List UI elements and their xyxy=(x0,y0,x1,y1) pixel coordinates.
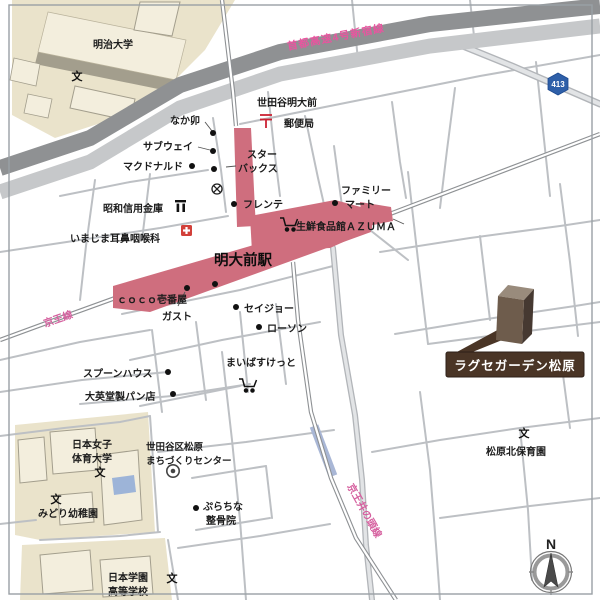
marker-building-front xyxy=(496,296,524,344)
label-lawson: ローソン xyxy=(267,324,307,335)
label-maibasket: まいばすけっと xyxy=(226,356,296,369)
campus-pool xyxy=(112,475,136,495)
label-frente: フレンテ xyxy=(243,199,283,211)
label-midori-kindergarten: みどり幼稚園 xyxy=(38,507,98,520)
school-mark-nwcpe: 文 xyxy=(95,465,107,479)
map-canvas: 413 文 文 文 文 文 明治大学 首都高速4号新宿線 世田谷明大前 郵便局 … xyxy=(0,0,600,600)
label-nakau: なか卯 xyxy=(170,114,200,127)
label-azuma: 生鮮食品館ＡＺＵＭＡ xyxy=(296,220,396,233)
label-spoon-house: スプーンハウス xyxy=(83,367,153,380)
label-meiji-university: 明治大学 xyxy=(93,38,133,51)
label-coco-ichibanya: ｃｏｃｏ壱番屋 xyxy=(117,293,187,306)
label-machizukuri-1: 世田谷区松原 xyxy=(146,441,204,453)
label-post-office-1: 世田谷明大前 xyxy=(257,96,317,109)
label-seijo: セイジョー xyxy=(244,303,294,315)
label-starbucks-1: スター xyxy=(247,149,277,161)
label-purachina-1: ぷらちな xyxy=(202,501,243,513)
marker-label-text: ラグセガーデン松原 xyxy=(454,358,576,373)
compass-north-label: N xyxy=(546,536,556,552)
label-imajima-clinic: いまじま耳鼻咽喉科 xyxy=(70,232,160,245)
school-mark-meiji: 文 xyxy=(72,69,84,83)
label-familymart-2: マート xyxy=(345,199,375,211)
label-purachina-2: 整骨院 xyxy=(205,514,236,527)
label-station: 明大前駅 xyxy=(214,251,272,269)
school-mark-matsubara: 文 xyxy=(519,426,531,440)
label-nihongakuen-2: 高等学校 xyxy=(108,585,149,598)
school-mark-midori: 文 xyxy=(51,492,63,506)
label-subway: サブウェイ xyxy=(143,140,193,153)
label-showa-shinkin: 昭和信用金庫 xyxy=(103,202,163,215)
route-number: 413 xyxy=(551,80,565,89)
location-map: 413 文 文 文 文 文 明治大学 首都高速4号新宿線 世田谷明大前 郵便局 … xyxy=(0,0,600,600)
school-mark-nihongakuen: 文 xyxy=(167,571,179,585)
label-daieido: 大英堂製パン店 xyxy=(85,390,156,403)
label-machizukuri-2: まちづくりセンター xyxy=(146,455,232,467)
label-post-office-2: 郵便局 xyxy=(284,117,314,130)
hospital-icon xyxy=(181,225,192,236)
koban-icon xyxy=(212,184,222,194)
label-nwcpe-2: 体育大学 xyxy=(72,452,112,465)
label-nwcpe-1: 日本女子 xyxy=(72,438,112,451)
campus-nihongakuen xyxy=(20,538,172,600)
label-mcdonalds: マクドナルド xyxy=(123,161,183,173)
label-matsubara-nursery: 松原北保育園 xyxy=(486,445,546,458)
label-familymart-1: ファミリー xyxy=(341,185,391,197)
label-starbucks-2: バックス xyxy=(238,163,278,175)
label-gusto: ガスト xyxy=(162,310,192,323)
label-nihongakuen-1: 日本学園 xyxy=(108,571,148,584)
